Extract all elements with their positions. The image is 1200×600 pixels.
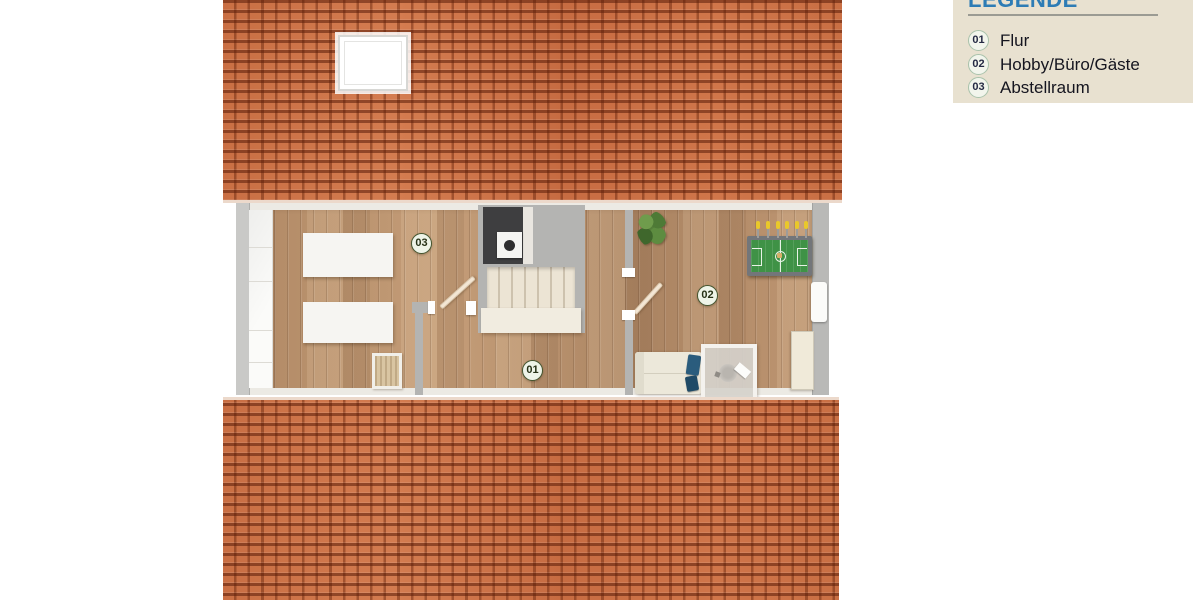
door-frame [622,310,635,320]
sofa [635,352,702,394]
shelf-unit [249,210,273,388]
interior-wall [625,210,633,268]
stairwell-edge [523,207,533,264]
legend-divider [968,14,1158,16]
stair-treads [487,267,575,308]
interior-wall [625,320,633,395]
legend-badge-03: 03 [968,77,989,98]
sofa-pillow [685,375,699,392]
cabinet [791,331,814,390]
rod-handle [795,221,799,229]
rod-handle [785,221,789,229]
rod-handle [756,221,760,229]
potted-plant [637,211,667,247]
skylight-pane [344,41,402,85]
skylight-window [338,35,408,91]
roof-top [223,0,842,203]
sofa-seam [644,373,688,374]
chimney [497,232,522,258]
room-label-01: 01 [522,360,543,381]
rod-handle [804,221,808,229]
sofa-pillow [686,354,702,376]
legend-item-flur: 01 Flur [968,30,1029,51]
storage-box [303,302,393,343]
room-label-02: 02 [697,285,718,306]
rod-handle [776,221,780,229]
legend-item-hobby: 02 Hobby/Büro/Gäste [968,54,1140,75]
floor-opening-window [701,344,757,404]
roof-bottom [223,397,839,600]
stair-landing [481,308,581,333]
foosball-rod [767,224,769,238]
goal-box [752,248,762,266]
door-frame [466,301,476,315]
foosball-field [751,240,808,272]
foosball-ball [777,253,782,258]
legend-label-02: Hobby/Büro/Gäste [1000,55,1140,75]
foosball-table [747,236,812,276]
desk-below [734,362,751,379]
foosball-rod [757,224,759,238]
foosball-rod [777,224,779,238]
foosball-rod [805,224,807,238]
goal-box [797,248,807,266]
legend-label-03: Abstellraum [1000,78,1090,98]
shelf-divider [249,281,272,282]
foosball-rod [786,224,788,238]
laundry-basket [372,353,402,389]
legend-title: LEGENDE [968,0,1078,13]
room-label-03: 03 [411,233,432,254]
legend-label-01: Flur [1000,31,1029,51]
chimney-flue [504,240,515,251]
sofa-armrest [635,352,644,394]
foosball-rod [796,224,798,238]
wall-left [236,203,250,395]
rod-handle [766,221,770,229]
shelf-divider [249,362,272,363]
legend-badge-02: 02 [968,54,989,75]
door-frame [428,301,435,314]
legend-panel: LEGENDE 01 Flur 02 Hobby/Büro/Gäste 03 A… [953,0,1193,103]
shelf-divider [249,247,272,248]
legend-item-abstellraum: 03 Abstellraum [968,77,1090,98]
door-frame [622,268,635,277]
shelf-divider [249,330,272,331]
interior-wall [415,310,423,395]
legend-badge-01: 01 [968,30,989,51]
storage-box [303,233,393,277]
floorplan-canvas: 01 02 03 LEGENDE 01 Flur 02 Hobby/Büro/G… [0,0,1200,600]
wall-radiator [811,282,827,322]
